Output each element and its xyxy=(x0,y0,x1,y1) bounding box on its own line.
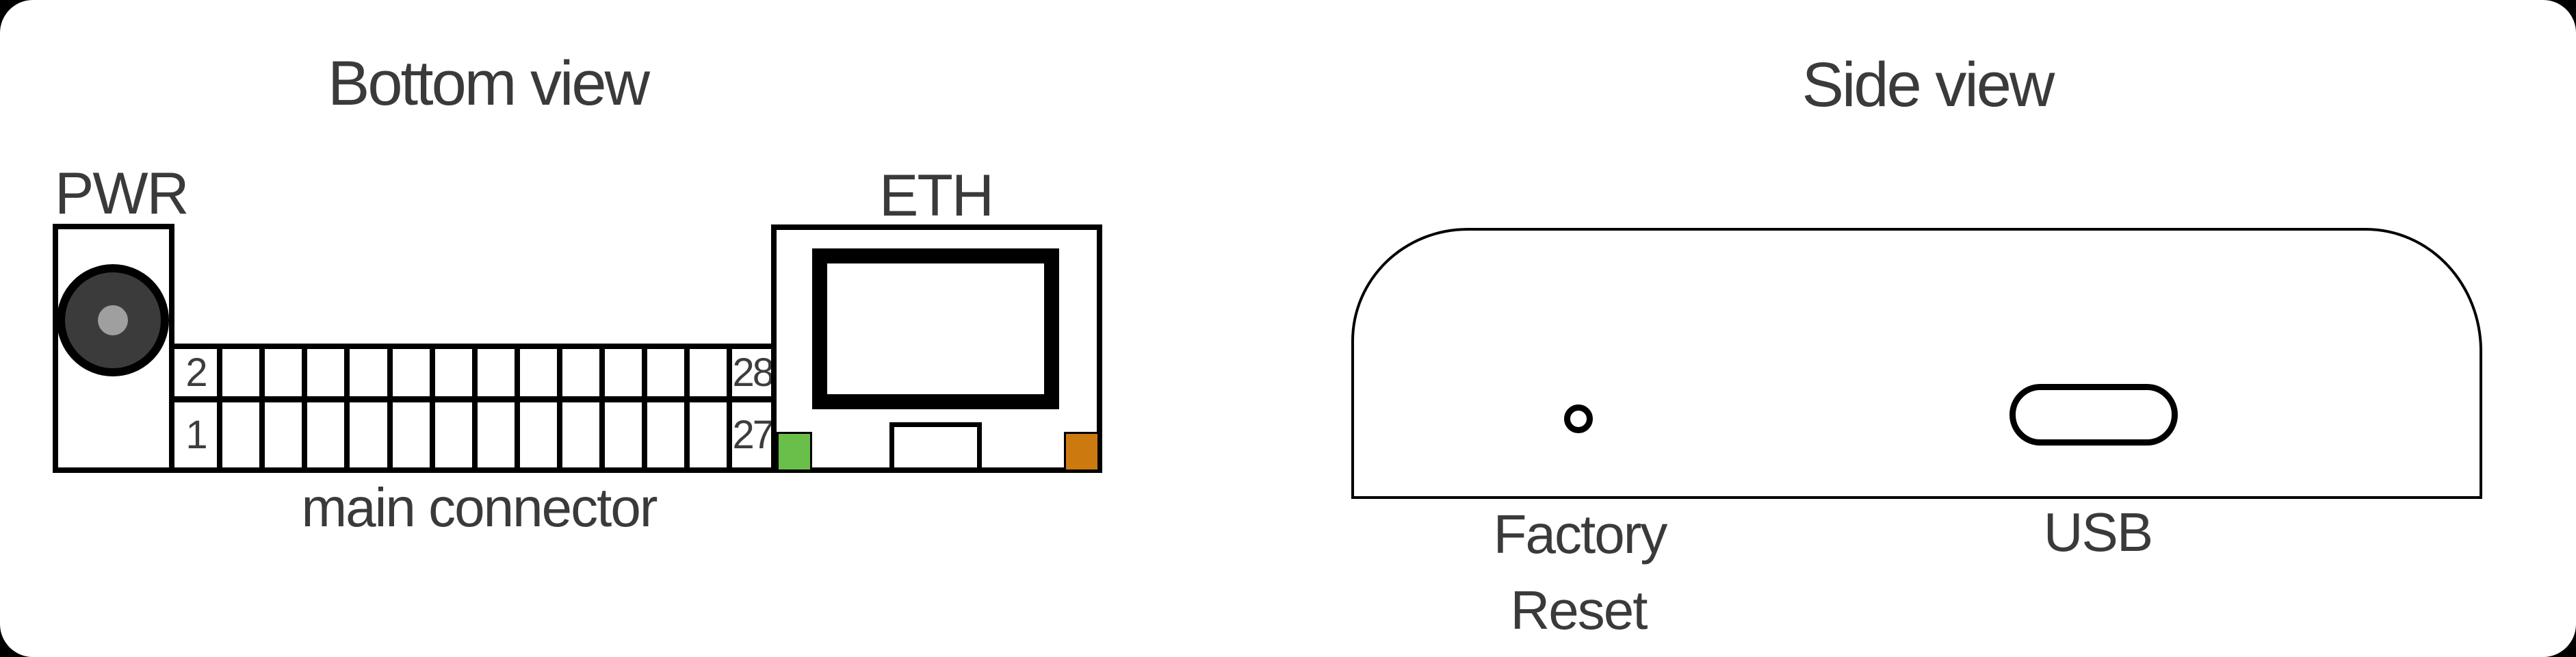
pin-number: 1 xyxy=(185,412,205,458)
usb-label: USB xyxy=(2044,505,2152,560)
rj45-opening xyxy=(812,248,1059,409)
eth-label: ETH xyxy=(879,166,993,225)
pin-cell xyxy=(259,402,302,467)
pin-cell xyxy=(642,402,684,467)
pin-cell xyxy=(259,349,302,402)
pin-cell xyxy=(430,402,472,467)
pin-cell xyxy=(515,349,557,402)
main-connector-label: main connector xyxy=(302,480,657,535)
pin-cell xyxy=(302,349,344,402)
factory-reset-hole xyxy=(1564,404,1593,433)
pin-cell xyxy=(472,349,515,402)
usb-port xyxy=(2009,384,2178,446)
eth-port-box xyxy=(771,224,1102,473)
pin-cell xyxy=(642,349,684,402)
bottom-view-title: Bottom view xyxy=(328,52,648,115)
factory-reset-label-line2: Reset xyxy=(1511,583,1647,638)
pin-cell xyxy=(472,402,515,467)
enclosure-outline xyxy=(1351,228,2482,499)
pwr-connector-box xyxy=(53,224,174,473)
pin-cell xyxy=(302,402,344,467)
main-connector-grid: 212827 xyxy=(169,344,778,473)
eth-led-amber xyxy=(1064,432,1100,472)
pin-number: 2 xyxy=(185,350,205,396)
pin-number: 28 xyxy=(732,350,772,396)
pin-cell xyxy=(344,402,387,467)
pin-cell xyxy=(515,402,557,467)
pin-cell xyxy=(217,349,259,402)
pin-cell xyxy=(557,402,599,467)
pin-cell xyxy=(217,402,259,467)
pin-cell xyxy=(344,349,387,402)
eth-led-green xyxy=(777,432,812,472)
pin-number: 27 xyxy=(732,412,772,458)
side-view-title: Side view xyxy=(1802,53,2053,116)
figure-card: Bottom view PWR 212827 main connector ET… xyxy=(0,0,2576,657)
pin-cell: 28 xyxy=(727,349,772,402)
pin-cell xyxy=(599,402,642,467)
pin-cell xyxy=(599,349,642,402)
rj45-latch-notch xyxy=(889,422,982,467)
pin-cell xyxy=(557,349,599,402)
factory-reset-label-line1: Factory xyxy=(1494,507,1667,562)
pin-cell: 2 xyxy=(174,349,217,402)
pin-cell xyxy=(387,349,430,402)
pin-cell: 27 xyxy=(727,402,772,467)
barrel-jack-center-pin xyxy=(98,305,128,335)
pwr-label: PWR xyxy=(55,164,188,223)
pin-cell xyxy=(430,349,472,402)
pin-cell xyxy=(684,402,727,467)
pin-cell: 1 xyxy=(174,402,217,467)
pin-cell xyxy=(387,402,430,467)
barrel-jack-icon xyxy=(57,264,169,376)
pin-cell xyxy=(684,349,727,402)
